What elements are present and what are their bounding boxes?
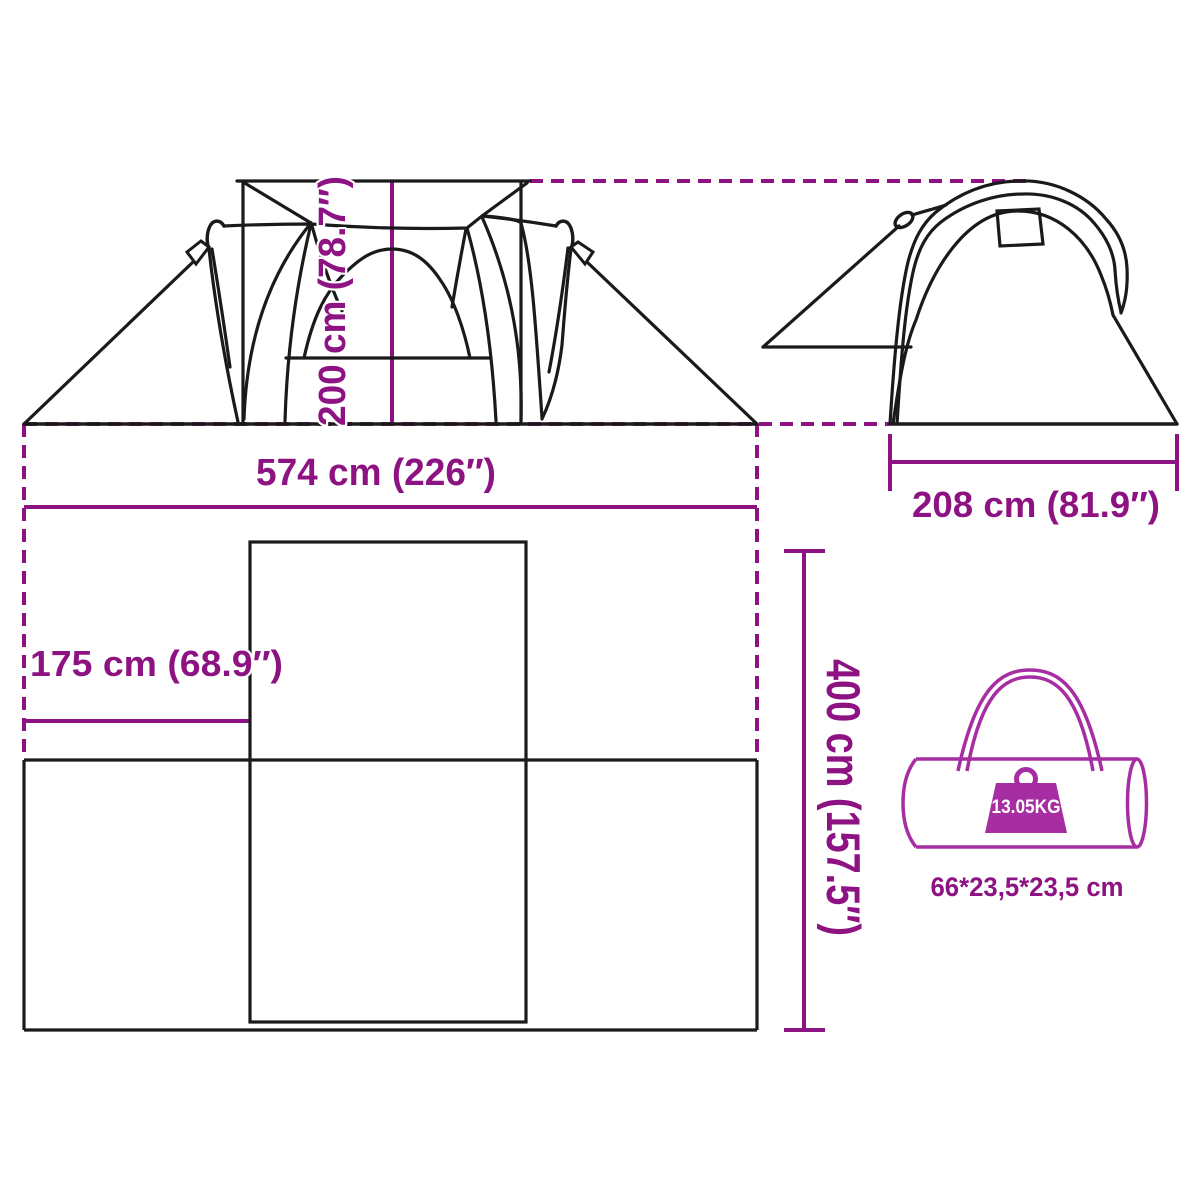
svg-text:574 cm (226″): 574 cm (226″) xyxy=(256,452,496,494)
svg-text:400 cm (157.5″): 400 cm (157.5″) xyxy=(817,659,870,936)
svg-text:66*23,5*23,5 cm: 66*23,5*23,5 cm xyxy=(931,872,1124,902)
svg-text:200 cm (78.7″): 200 cm (78.7″) xyxy=(312,176,354,426)
svg-text:175 cm (68.9″): 175 cm (68.9″) xyxy=(30,643,283,684)
svg-text:208 cm (81.9″): 208 cm (81.9″) xyxy=(912,484,1160,525)
svg-text:13.05KG: 13.05KG xyxy=(992,797,1061,818)
